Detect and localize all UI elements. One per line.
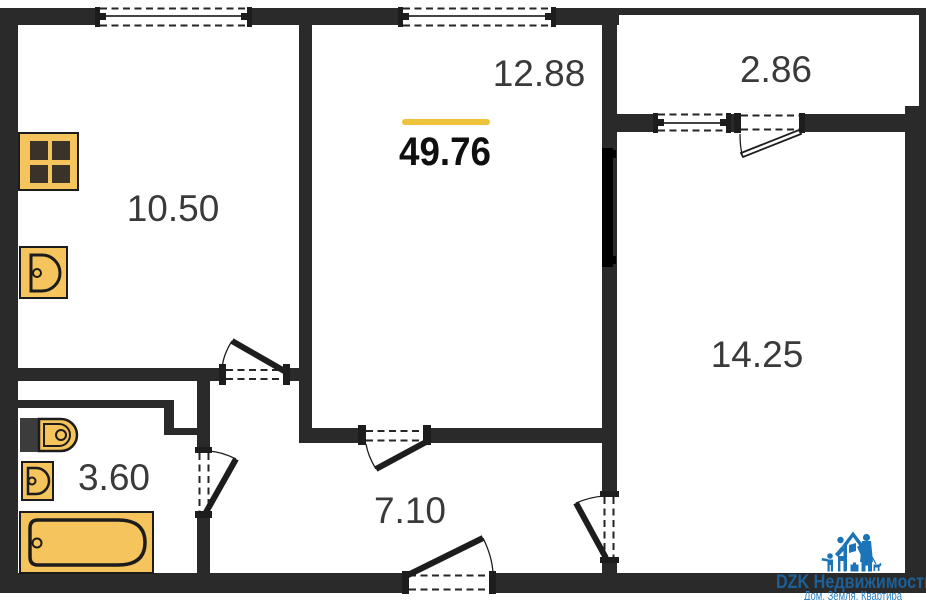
svg-text:12.88: 12.88 (493, 53, 586, 94)
svg-text:3.60: 3.60 (78, 457, 150, 498)
svg-text:49.76: 49.76 (399, 130, 491, 174)
svg-text:7.10: 7.10 (374, 490, 446, 531)
svg-text:14.25: 14.25 (711, 334, 804, 375)
svg-text:10.50: 10.50 (127, 188, 220, 229)
svg-text:2.86: 2.86 (740, 49, 812, 90)
svg-text:Дом. Земля. Квартира: Дом. Земля. Квартира (804, 589, 902, 600)
